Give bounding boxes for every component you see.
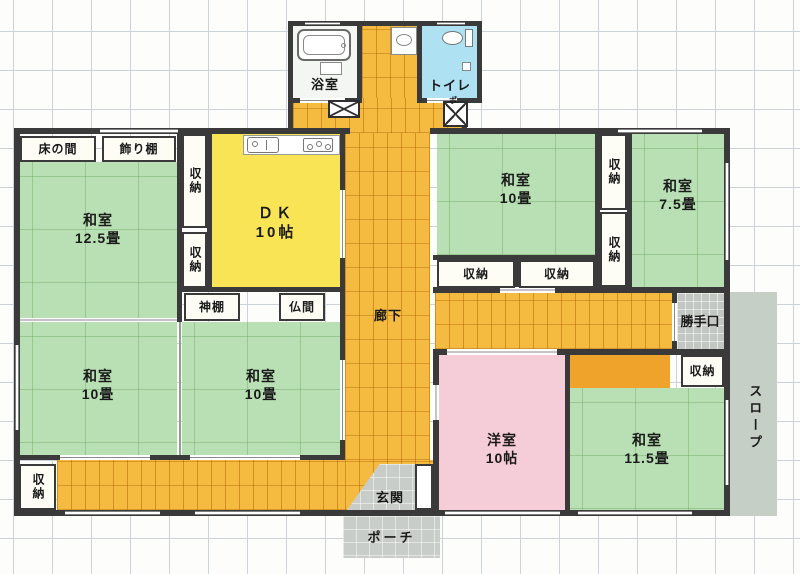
door-youshitsu-top <box>447 349 557 355</box>
washitsu-10-ne-label: 和室 10畳 <box>446 172 586 207</box>
storage-label: 収納 <box>544 267 570 282</box>
tokonoma-box: 床の間 <box>20 136 96 162</box>
corridor-central <box>345 133 430 460</box>
bathtub-icon <box>297 29 351 61</box>
washer-pan-box <box>328 100 360 118</box>
tokonoma-label: 床の間 <box>38 142 77 157</box>
window-toilet-top <box>437 22 465 25</box>
kamidana-label: 神棚 <box>199 300 225 315</box>
window-right-115 <box>725 400 729 485</box>
slope-label: スロープ <box>746 358 762 478</box>
washitsu-10-sw2-label: 和室 10畳 <box>191 368 331 403</box>
butsuma-label: 仏間 <box>289 300 315 315</box>
boiler-mark: ポ <box>449 95 457 106</box>
storage-sw-corner: 収納 <box>19 464 56 510</box>
storage-label: 収納 <box>30 473 45 501</box>
wall-bath-right <box>357 21 362 103</box>
window-above-75 <box>618 129 702 133</box>
kazaridana-label: 飾り棚 <box>119 142 158 157</box>
washitsu-125-label: 和室 12.5畳 <box>28 212 168 247</box>
stove-icon <box>303 138 333 152</box>
storage-label: 収納 <box>463 267 489 282</box>
storage-label: 収納 <box>187 167 202 195</box>
storage-label: 収納 <box>606 236 621 264</box>
washitsu-115-label: 和室 11.5畳 <box>577 432 717 467</box>
youshitsu-label: 洋室 10帖 <box>432 432 572 467</box>
washitsu-10-sw1-label: 和室 10畳 <box>28 368 168 403</box>
entrance-label: 玄関 <box>360 490 420 506</box>
toilet-paper-icon <box>462 62 471 71</box>
fusuma-line-sw <box>179 322 181 455</box>
window-bottom-1 <box>65 511 160 515</box>
storage-ne-col-2: 収納 <box>600 212 627 287</box>
bath-label: 浴室 <box>295 77 355 93</box>
storage-ne-bottom-1: 収納 <box>437 260 515 288</box>
window-bottom-3 <box>445 511 560 515</box>
porch-label: ポーチ <box>343 530 440 546</box>
floor-plan: 床の間 飾り棚 収納 収納 神棚 仏間 収納 収納 収納 収納 収納 収納 ポ <box>0 0 800 574</box>
toilet-label: トイレ <box>422 78 478 94</box>
fusuma-125-sw1 <box>20 318 177 322</box>
window-bath-top <box>305 22 340 25</box>
storage-right: 収納 <box>681 355 724 387</box>
kitchen-sink-icon <box>247 137 279 153</box>
door-dk-corridor <box>340 190 345 258</box>
dk-label: ＤＫ 10帖 <box>212 205 340 243</box>
storage-label: 収納 <box>187 246 202 274</box>
door-sw2-bottom <box>190 455 300 460</box>
window-left-sw <box>15 345 19 430</box>
window-bottom-4 <box>578 511 692 515</box>
storage-left-2: 収納 <box>182 232 207 288</box>
kamidana-box: 神棚 <box>184 293 240 321</box>
storage-label: 収納 <box>689 364 715 379</box>
washitsu-75-label: 和室 7.5畳 <box>608 178 748 213</box>
washbasin-icon <box>391 27 417 55</box>
door-sw2-corridor <box>340 360 345 440</box>
toilet-icon <box>442 29 476 47</box>
bath-counter-icon <box>320 62 342 75</box>
storage-ne-bottom-2: 収納 <box>519 260 595 288</box>
door-youshitsu <box>433 385 439 420</box>
corridor-arm <box>435 293 673 349</box>
closet-band <box>570 355 670 388</box>
door-sw1-bottom <box>60 455 150 460</box>
wall-util-left <box>288 21 293 131</box>
backdoor-label: 勝手口 <box>665 314 735 330</box>
storage-left-1: 収納 <box>182 134 207 228</box>
butsuma-box: 仏間 <box>279 293 325 321</box>
corridor-label: 廊下 <box>348 308 428 324</box>
window-bottom-2 <box>195 511 300 515</box>
corridor-bottom <box>57 458 345 510</box>
kazaridana-box: 飾り棚 <box>102 136 176 162</box>
window-above-shelf <box>100 129 178 133</box>
